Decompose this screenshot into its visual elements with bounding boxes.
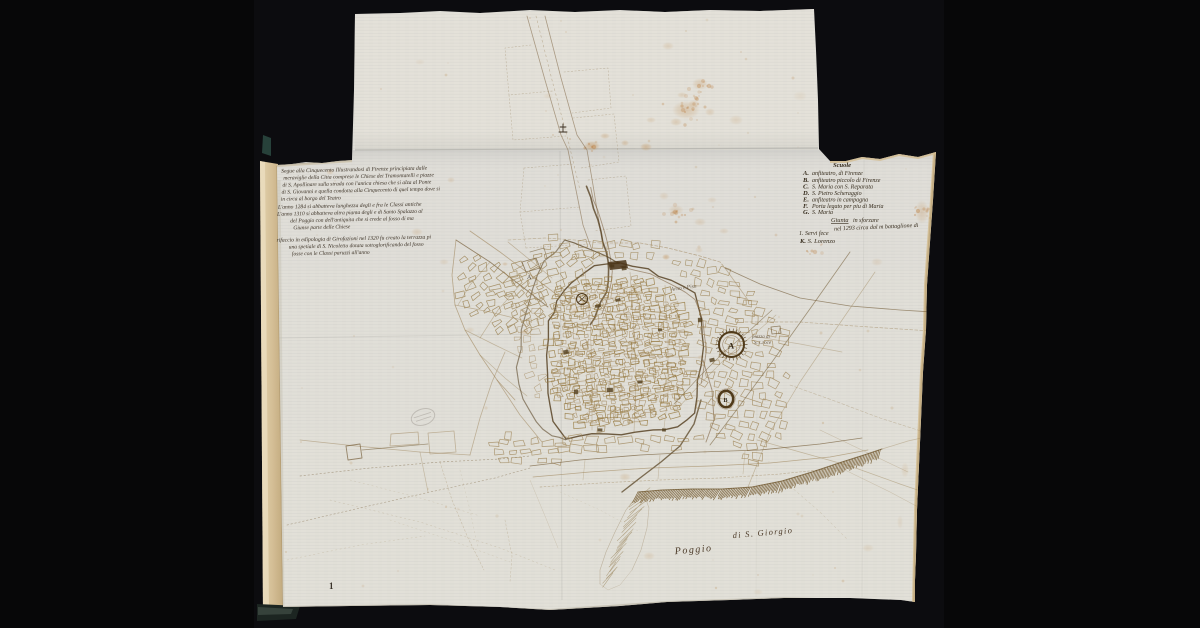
svg-text:anfiteatro, di Firenze: anfiteatro, di Firenze	[812, 170, 863, 177]
svg-text:S. Maria: S. Maria	[812, 210, 833, 216]
svg-text:anfiteatro piccolo di Firenze: anfiteatro piccolo di Firenze	[812, 177, 881, 184]
svg-text:A: A	[527, 275, 532, 281]
svg-text:in sforzare: in sforzare	[853, 217, 879, 224]
svg-text:A: A	[728, 341, 735, 351]
svg-text:B: B	[724, 398, 728, 404]
svg-text:G.: G.	[803, 209, 810, 216]
svg-text:Scuole: Scuole	[833, 162, 851, 169]
svg-text:Giunse parte delle Chiese: Giunse parte delle Chiese	[293, 224, 351, 231]
svg-text:S. Croce: S. Croce	[754, 341, 772, 346]
svg-text:1: 1	[329, 581, 334, 591]
svg-text:K. S. Lorenzo: K. S. Lorenzo	[799, 238, 836, 245]
svg-text:1. Servi fece: 1. Servi fece	[799, 230, 829, 237]
svg-text:S. Maria con S. Reparata: S. Maria con S. Reparata	[812, 185, 873, 191]
svg-text:Giunta: Giunta	[831, 217, 849, 224]
svg-text:piazza di: piazza di	[751, 335, 771, 340]
svg-text:S. Pietro Scheraggio: S. Pietro Scheraggio	[812, 191, 862, 197]
svg-text:in circa al borgo del Teatro: in circa al borgo del Teatro	[281, 195, 342, 202]
svg-text:anfiteatro in campagna: anfiteatro in campagna	[812, 197, 868, 204]
svg-text:A.: A.	[802, 170, 809, 177]
